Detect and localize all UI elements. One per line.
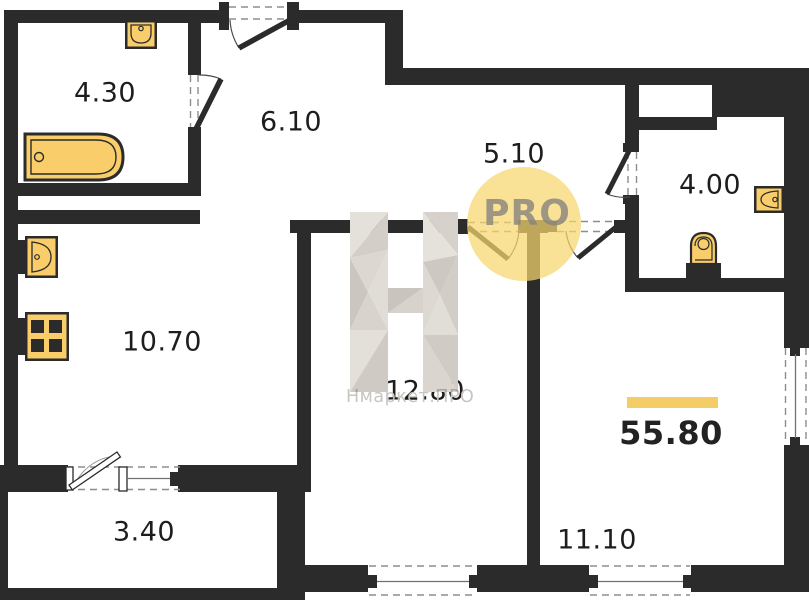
watermark-layer: Нмаркет.ПРО PRO — [0, 0, 809, 600]
watermark-brand-text: Нмаркет.ПРО — [346, 387, 474, 407]
watermark-logo-icon — [350, 212, 458, 392]
floor-plan: 4.30 6.10 5.10 4.00 10.70 12.80 11.10 3.… — [0, 0, 809, 600]
pro-badge-text: PRO — [483, 193, 571, 234]
